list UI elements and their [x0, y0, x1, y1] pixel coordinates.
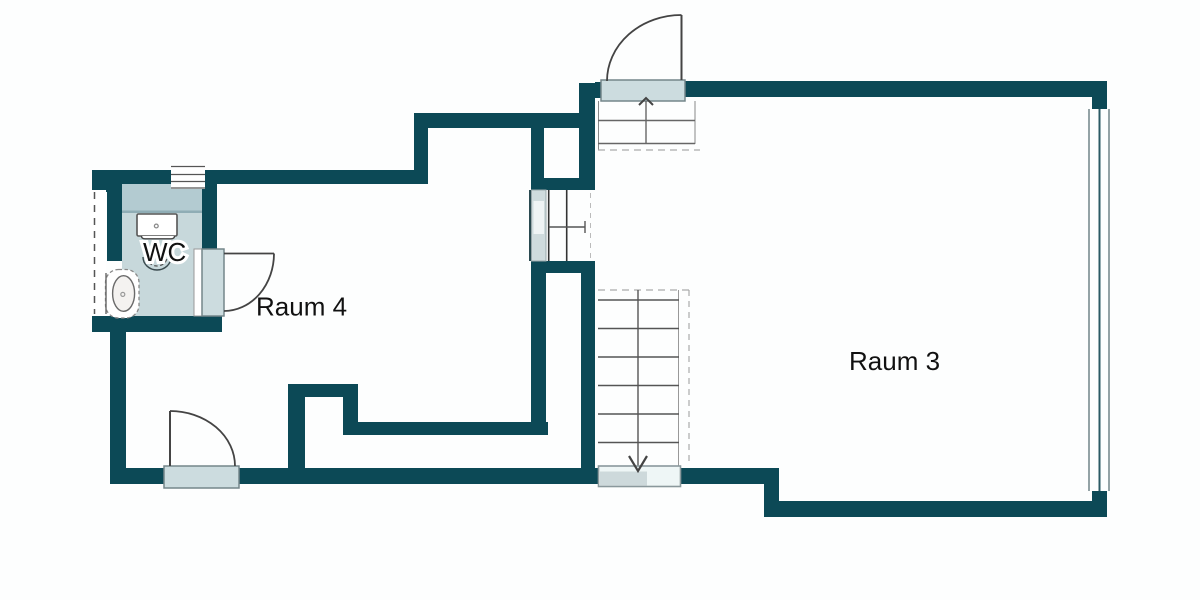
svg-text:Raum 4: Raum 4: [256, 292, 347, 322]
svg-text:WC: WC: [143, 237, 186, 267]
svg-text:Raum 3: Raum 3: [849, 346, 940, 376]
